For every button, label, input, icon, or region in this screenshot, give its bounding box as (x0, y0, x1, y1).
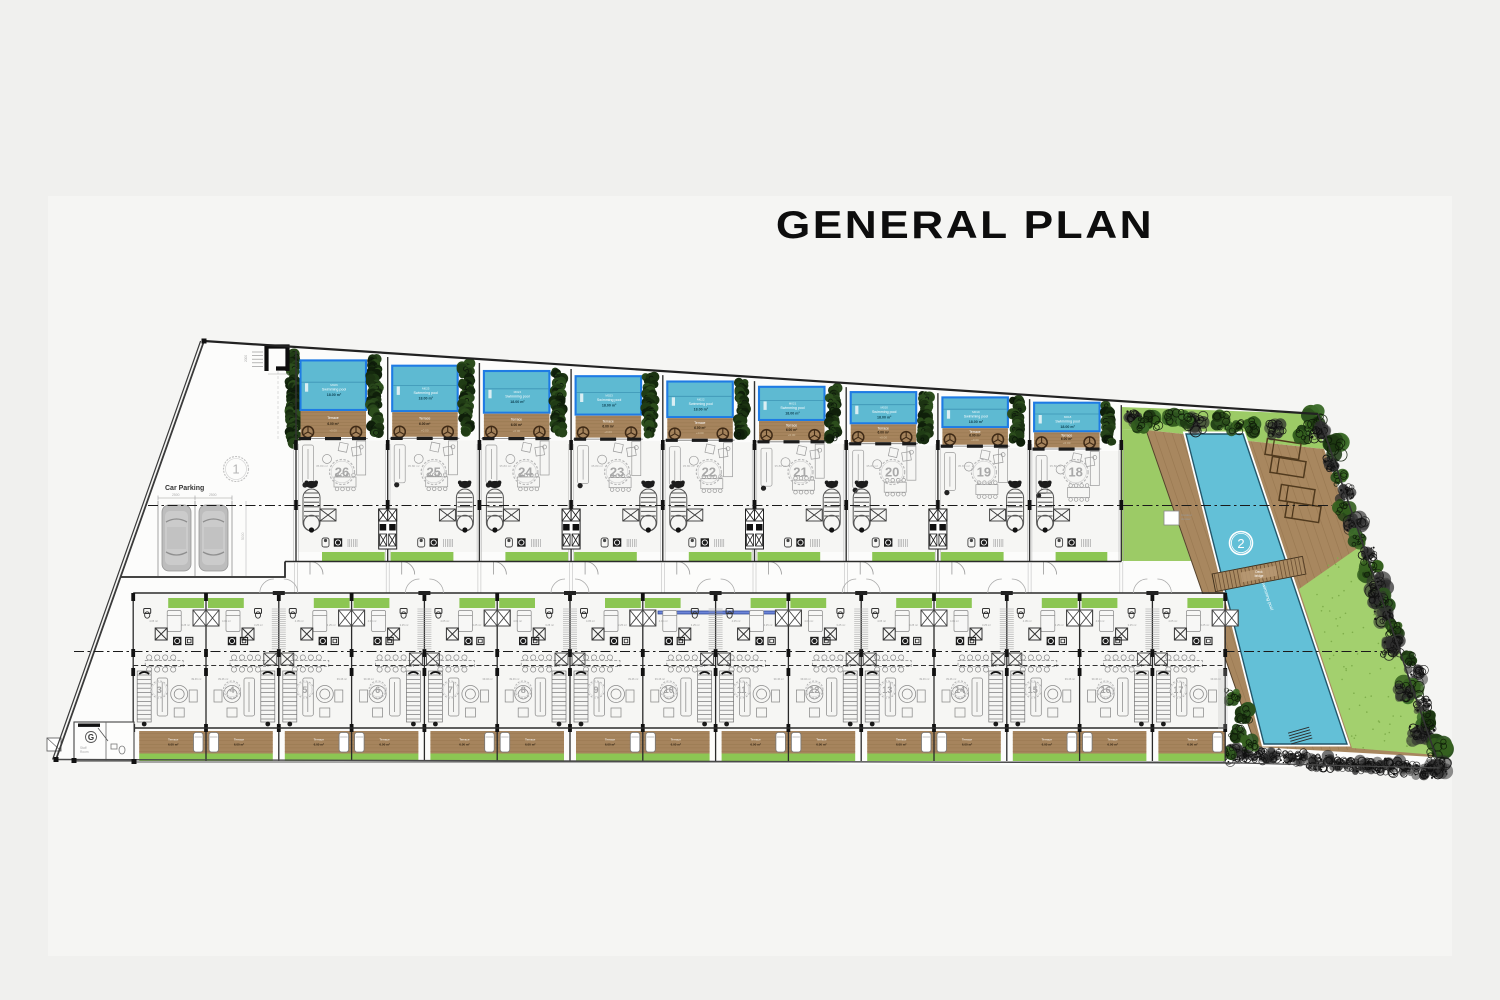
svg-text:11: 11 (737, 685, 747, 695)
svg-text:3.25 m²: 3.25 m² (1200, 623, 1209, 627)
svg-text:2500: 2500 (172, 493, 180, 497)
svg-text:4.05 m²: 4.05 m² (513, 619, 522, 623)
svg-text:18.00 m²: 18.00 m² (602, 404, 617, 408)
svg-text:4.05 m²: 4.05 m² (368, 619, 377, 623)
svg-text:6.00 m²: 6.00 m² (511, 423, 523, 427)
svg-text:Terrace: Terrace (234, 738, 245, 742)
svg-text:Car Parking: Car Parking (165, 485, 204, 492)
svg-text:35.80 m²: 35.80 m² (408, 464, 420, 468)
svg-text:+0.00: +0.00 (604, 430, 612, 434)
svg-text:3.25 m²: 3.25 m² (1128, 623, 1137, 627)
svg-text:5000: 5000 (241, 532, 245, 540)
svg-text:3.25 m²: 3.25 m² (618, 623, 627, 627)
svg-text:M023: M023 (605, 394, 613, 398)
svg-text:Swimming pool: Swimming pool (872, 410, 897, 414)
svg-text:39.46 m²: 39.46 m² (655, 677, 665, 681)
svg-text:4.05 m²: 4.05 m² (149, 619, 158, 623)
svg-text:6.00 m²: 6.00 m² (234, 743, 244, 747)
svg-text:Terrace: Terrace (1187, 738, 1198, 742)
svg-text:6.00 m²: 6.00 m² (525, 743, 535, 747)
svg-text:6.00 m²: 6.00 m² (878, 431, 890, 435)
svg-text:39.46 m²: 39.46 m² (946, 677, 956, 681)
svg-text:Swimming pool: Swimming pool (414, 391, 439, 395)
svg-text:Terrace: Terrace (379, 738, 390, 742)
svg-text:39.46 m²: 39.46 m² (1092, 677, 1102, 681)
svg-text:6.00 m²: 6.00 m² (605, 743, 615, 747)
svg-text:3.25 m²: 3.25 m² (400, 623, 409, 627)
svg-text:4.05 m²: 4.05 m² (440, 619, 449, 623)
svg-text:6.00 m²: 6.00 m² (1107, 743, 1117, 747)
svg-text:39.46 m²: 39.46 m² (191, 677, 201, 681)
svg-text:4.05 m²: 4.05 m² (1023, 619, 1032, 623)
svg-text:35.80 m²: 35.80 m² (683, 464, 695, 468)
svg-text:shower: shower (1181, 517, 1191, 521)
svg-text:18.00 m²: 18.00 m² (969, 420, 984, 424)
svg-text:Room: Room (80, 750, 89, 754)
svg-text:5: 5 (302, 685, 307, 695)
svg-text:2: 2 (1237, 536, 1244, 551)
svg-text:Terrace: Terrace (750, 738, 761, 742)
svg-text:20: 20 (885, 465, 899, 480)
svg-text:Swimming pool: Swimming pool (780, 406, 805, 410)
svg-text:bridge: bridge (1255, 574, 1264, 578)
svg-text:35.80 m²: 35.80 m² (866, 464, 878, 468)
svg-text:3.25 m²: 3.25 m² (1055, 623, 1064, 627)
svg-text:12: 12 (809, 685, 819, 695)
svg-text:M026: M026 (330, 383, 338, 387)
svg-text:4.05 m²: 4.05 m² (877, 619, 886, 623)
svg-text:Terrace: Terrace (168, 738, 179, 742)
svg-text:6.00 m²: 6.00 m² (419, 422, 431, 426)
svg-text:35.80 m²: 35.80 m² (499, 464, 511, 468)
svg-text:+0.00: +0.00 (1063, 441, 1071, 445)
svg-text:3.25 m²: 3.25 m² (909, 623, 918, 627)
svg-text:22: 22 (702, 465, 716, 480)
svg-text:3.25 m²: 3.25 m² (982, 623, 991, 627)
svg-text:18.00 m²: 18.00 m² (419, 396, 434, 400)
svg-text:16: 16 (1101, 685, 1111, 695)
svg-text:Terrace: Terrace (786, 424, 797, 428)
svg-text:Terrace: Terrace (525, 738, 536, 742)
svg-text:25: 25 (426, 465, 440, 480)
svg-text:4.05 m²: 4.05 m² (1096, 619, 1105, 623)
svg-text:4.05 m²: 4.05 m² (1168, 619, 1177, 623)
svg-text:6.00 m²: 6.00 m² (327, 422, 339, 426)
svg-text:6.00 m²: 6.00 m² (602, 424, 614, 428)
svg-text:39.46 m²: 39.46 m² (919, 677, 929, 681)
svg-text:18.00 m²: 18.00 m² (877, 416, 892, 420)
svg-text:6.00 m²: 6.00 m² (671, 743, 681, 747)
svg-text:39.46 m²: 39.46 m² (509, 677, 519, 681)
svg-text:+0.00: +0.00 (879, 435, 887, 439)
svg-text:6.00 m²: 6.00 m² (750, 743, 760, 747)
svg-text:26: 26 (335, 465, 349, 480)
svg-text:Terrace: Terrace (419, 417, 430, 421)
svg-text:24: 24 (518, 465, 533, 480)
svg-text:2500: 2500 (209, 493, 217, 497)
svg-text:35.80 m²: 35.80 m² (1050, 464, 1062, 468)
svg-text:18.00 m²: 18.00 m² (694, 407, 709, 411)
svg-text:35.80 m²: 35.80 m² (775, 464, 787, 468)
svg-text:4: 4 (229, 685, 234, 695)
svg-text:8: 8 (521, 685, 526, 695)
svg-text:6: 6 (375, 685, 380, 695)
svg-text:+0.00: +0.00 (513, 429, 521, 433)
svg-text:Terrace: Terrace (1042, 738, 1053, 742)
svg-text:6.00 m²: 6.00 m² (314, 743, 324, 747)
svg-text:Swimming pool: Swimming pool (1055, 420, 1080, 424)
svg-text:Terrace: Terrace (694, 421, 705, 425)
svg-text:15: 15 (1028, 685, 1038, 695)
svg-text:6.00 m²: 6.00 m² (379, 743, 389, 747)
svg-text:M020: M020 (880, 406, 888, 410)
svg-text:Terrace: Terrace (671, 738, 682, 742)
svg-text:4.05 m²: 4.05 m² (295, 619, 304, 623)
svg-text:3.25 m²: 3.25 m² (764, 623, 773, 627)
svg-text:6.00 m²: 6.00 m² (896, 743, 906, 747)
svg-text:39.46 m²: 39.46 m² (774, 677, 784, 681)
svg-text:6.00 m²: 6.00 m² (694, 426, 706, 430)
svg-text:3.25 m²: 3.25 m² (472, 623, 481, 627)
svg-text:+0.00: +0.00 (329, 428, 337, 432)
svg-text:Swimming pool: Swimming pool (689, 402, 714, 406)
svg-text:6.00 m²: 6.00 m² (459, 743, 469, 747)
svg-text:35.80 m²: 35.80 m² (316, 464, 328, 468)
svg-text:6.00 m²: 6.00 m² (786, 428, 798, 432)
svg-text:3: 3 (157, 685, 162, 695)
svg-text:3.25 m²: 3.25 m² (327, 623, 336, 627)
svg-text:Swimming pool: Swimming pool (322, 388, 347, 392)
svg-text:13: 13 (882, 685, 892, 695)
svg-text:4.05 m²: 4.05 m² (659, 619, 668, 623)
svg-text:39.46 m²: 39.46 m² (1065, 677, 1075, 681)
svg-text:+0.00: +0.00 (421, 428, 429, 432)
svg-text:18.00 m²: 18.00 m² (785, 411, 800, 415)
svg-text:M022: M022 (697, 397, 705, 401)
svg-text:39.46 m²: 39.46 m² (628, 677, 638, 681)
svg-text:18.00 m²: 18.00 m² (1060, 425, 1075, 429)
svg-text:4.05 m²: 4.05 m² (732, 619, 741, 623)
svg-text:+0.00: +0.00 (971, 438, 979, 442)
svg-text:39.46 m²: 39.46 m² (482, 677, 492, 681)
svg-text:Terrace: Terrace (314, 738, 325, 742)
svg-text:+0.00: +0.00 (788, 433, 796, 437)
svg-text:18.00 m²: 18.00 m² (510, 400, 525, 404)
svg-text:9: 9 (593, 685, 598, 695)
svg-text:Terrace: Terrace (605, 738, 616, 742)
svg-text:3.25 m²: 3.25 m² (545, 623, 554, 627)
svg-text:1: 1 (232, 462, 239, 477)
svg-text:39.46 m²: 39.46 m² (1210, 677, 1220, 681)
svg-text:GENERAL PLAN: GENERAL PLAN (776, 202, 1154, 246)
svg-text:M021: M021 (789, 401, 797, 405)
svg-text:3.25 m²: 3.25 m² (254, 623, 263, 627)
svg-text:3.25 m²: 3.25 m² (181, 623, 190, 627)
svg-text:35.80 m²: 35.80 m² (591, 464, 603, 468)
svg-text:6.00 m²: 6.00 m² (1042, 743, 1052, 747)
svg-text:M025: M025 (422, 386, 430, 390)
svg-text:4.05 m²: 4.05 m² (586, 619, 595, 623)
svg-text:4.05 m²: 4.05 m² (804, 619, 813, 623)
svg-text:Swimming pool: Swimming pool (964, 415, 989, 419)
svg-text:Terrace: Terrace (459, 738, 470, 742)
svg-text:3.25 m²: 3.25 m² (691, 623, 700, 627)
svg-text:7: 7 (448, 685, 453, 695)
svg-text:M019: M019 (972, 410, 980, 414)
svg-text:M024: M024 (514, 390, 522, 394)
svg-text:Swimming pool: Swimming pool (505, 394, 530, 398)
svg-text:6.00 m²: 6.00 m² (962, 743, 972, 747)
svg-text:Terrace: Terrace (327, 416, 338, 420)
svg-text:Swimming pool: Swimming pool (597, 398, 622, 402)
svg-text:19: 19 (977, 465, 991, 480)
svg-text:M018: M018 (1064, 415, 1072, 419)
svg-text:3.25 m²: 3.25 m² (836, 623, 845, 627)
svg-text:Terrace: Terrace (1107, 738, 1118, 742)
svg-text:6.00 m²: 6.00 m² (1187, 743, 1197, 747)
svg-text:Terrace: Terrace (511, 418, 522, 422)
svg-text:18: 18 (1068, 465, 1082, 480)
svg-text:18.00 m²: 18.00 m² (327, 393, 342, 397)
svg-text:+0.00: +0.00 (696, 431, 704, 435)
svg-text:6.00 m²: 6.00 m² (168, 743, 178, 747)
svg-text:21: 21 (793, 465, 807, 480)
svg-text:35.80 m²: 35.80 m² (958, 464, 970, 468)
svg-text:39.46 m²: 39.46 m² (218, 677, 228, 681)
svg-text:39.46 m²: 39.46 m² (337, 677, 347, 681)
svg-text:39.46 m²: 39.46 m² (364, 677, 374, 681)
svg-text:10: 10 (664, 685, 674, 695)
svg-text:4.05 m²: 4.05 m² (950, 619, 959, 623)
svg-text:2000: 2000 (244, 355, 248, 362)
svg-text:Terrace: Terrace (962, 738, 973, 742)
svg-text:Terrace: Terrace (816, 738, 827, 742)
svg-text:39.46 m²: 39.46 m² (800, 677, 810, 681)
svg-text:23: 23 (610, 465, 624, 480)
svg-text:G: G (88, 733, 94, 742)
svg-text:Terrace: Terrace (602, 419, 613, 423)
svg-text:17: 17 (1173, 685, 1183, 695)
svg-text:Terrace: Terrace (896, 738, 907, 742)
svg-text:14: 14 (955, 685, 965, 695)
svg-text:4.05 m²: 4.05 m² (222, 619, 231, 623)
svg-text:6.00 m²: 6.00 m² (816, 743, 826, 747)
